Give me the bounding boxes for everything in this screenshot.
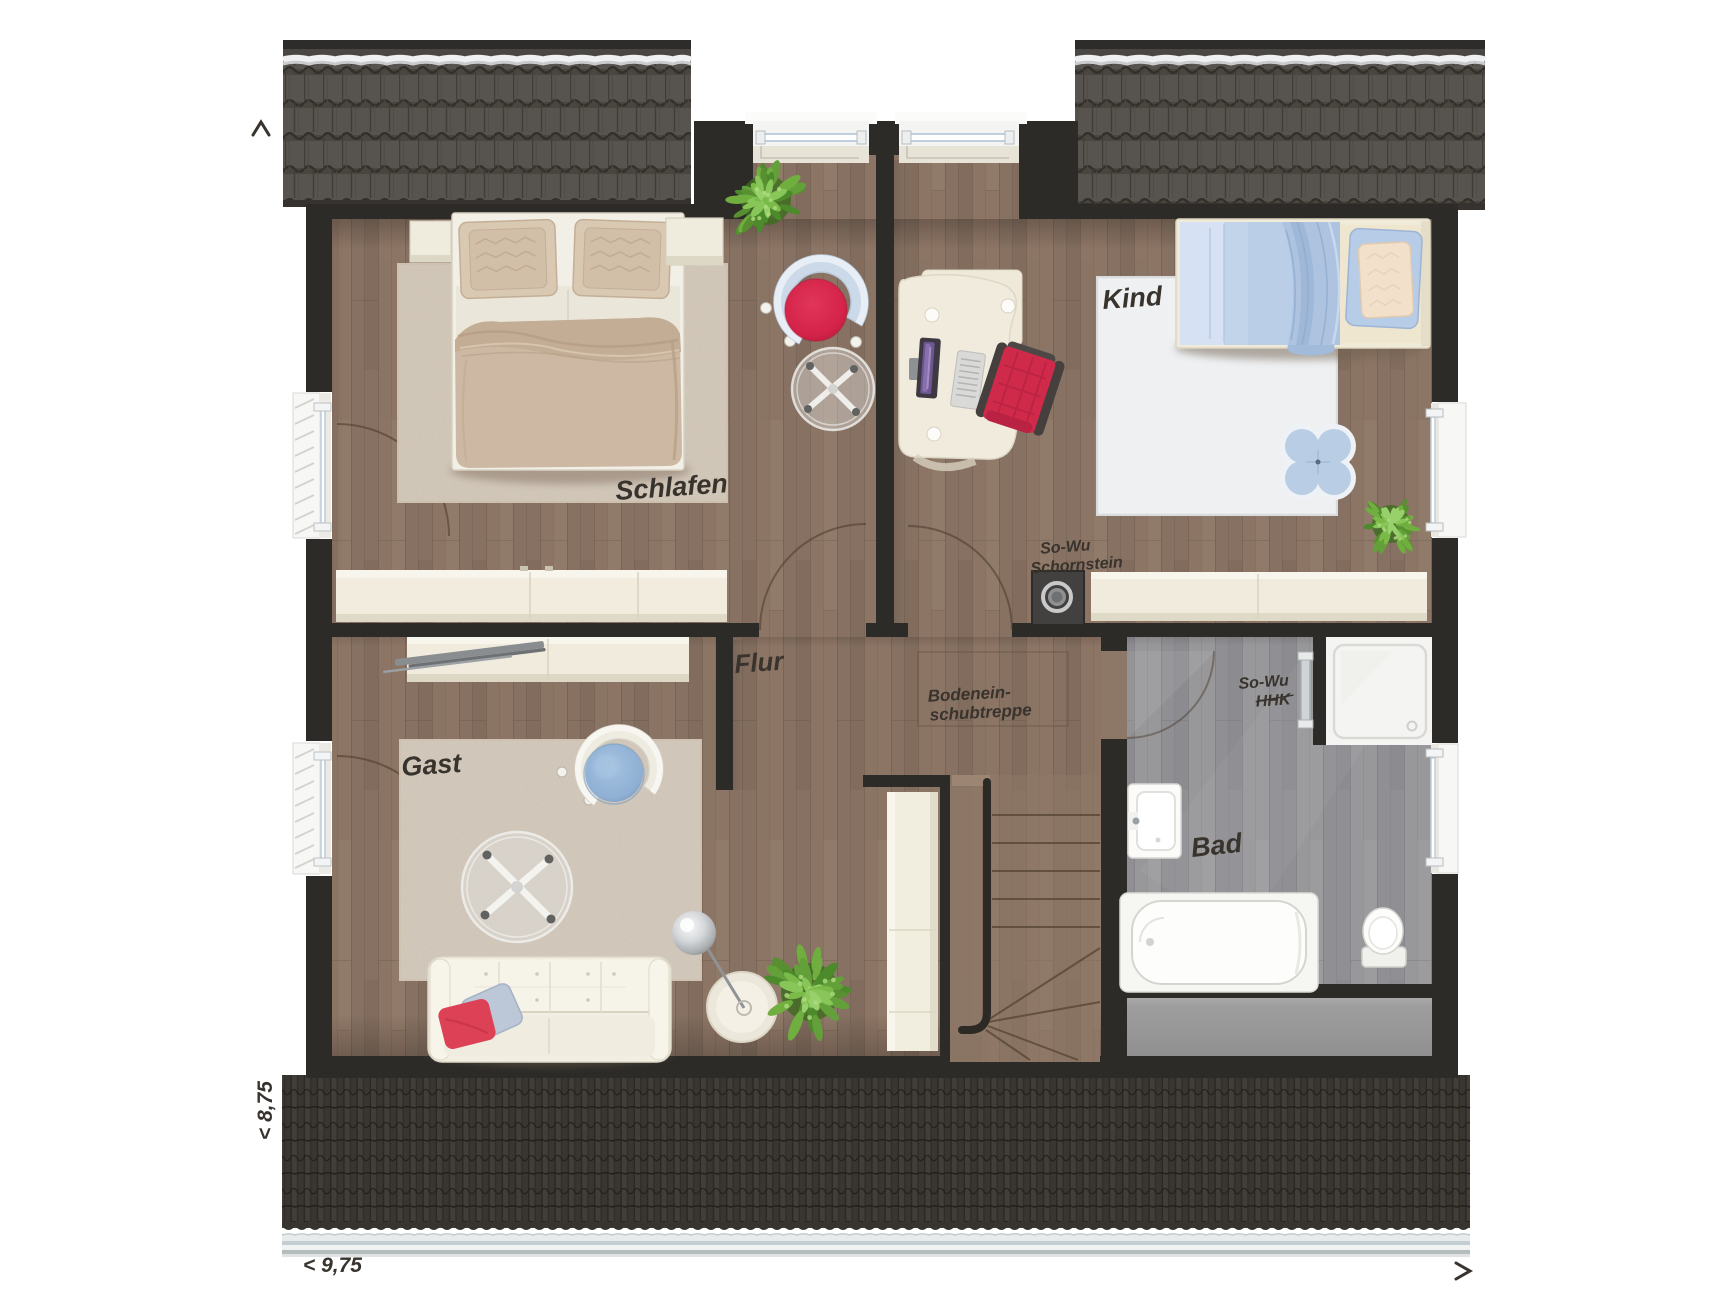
svg-text:So-Wu: So-Wu (1238, 672, 1290, 692)
svg-text:Flur: Flur (733, 646, 786, 679)
svg-text:< 9,75: < 9,75 (303, 1254, 362, 1277)
svg-text:< 8,75: < 8,75 (254, 1081, 277, 1140)
svg-text:Bad: Bad (1189, 828, 1243, 863)
svg-text:Kind: Kind (1101, 281, 1163, 315)
svg-text:Gast: Gast (400, 748, 463, 782)
svg-text:So-Wu: So-Wu (1040, 537, 1092, 557)
